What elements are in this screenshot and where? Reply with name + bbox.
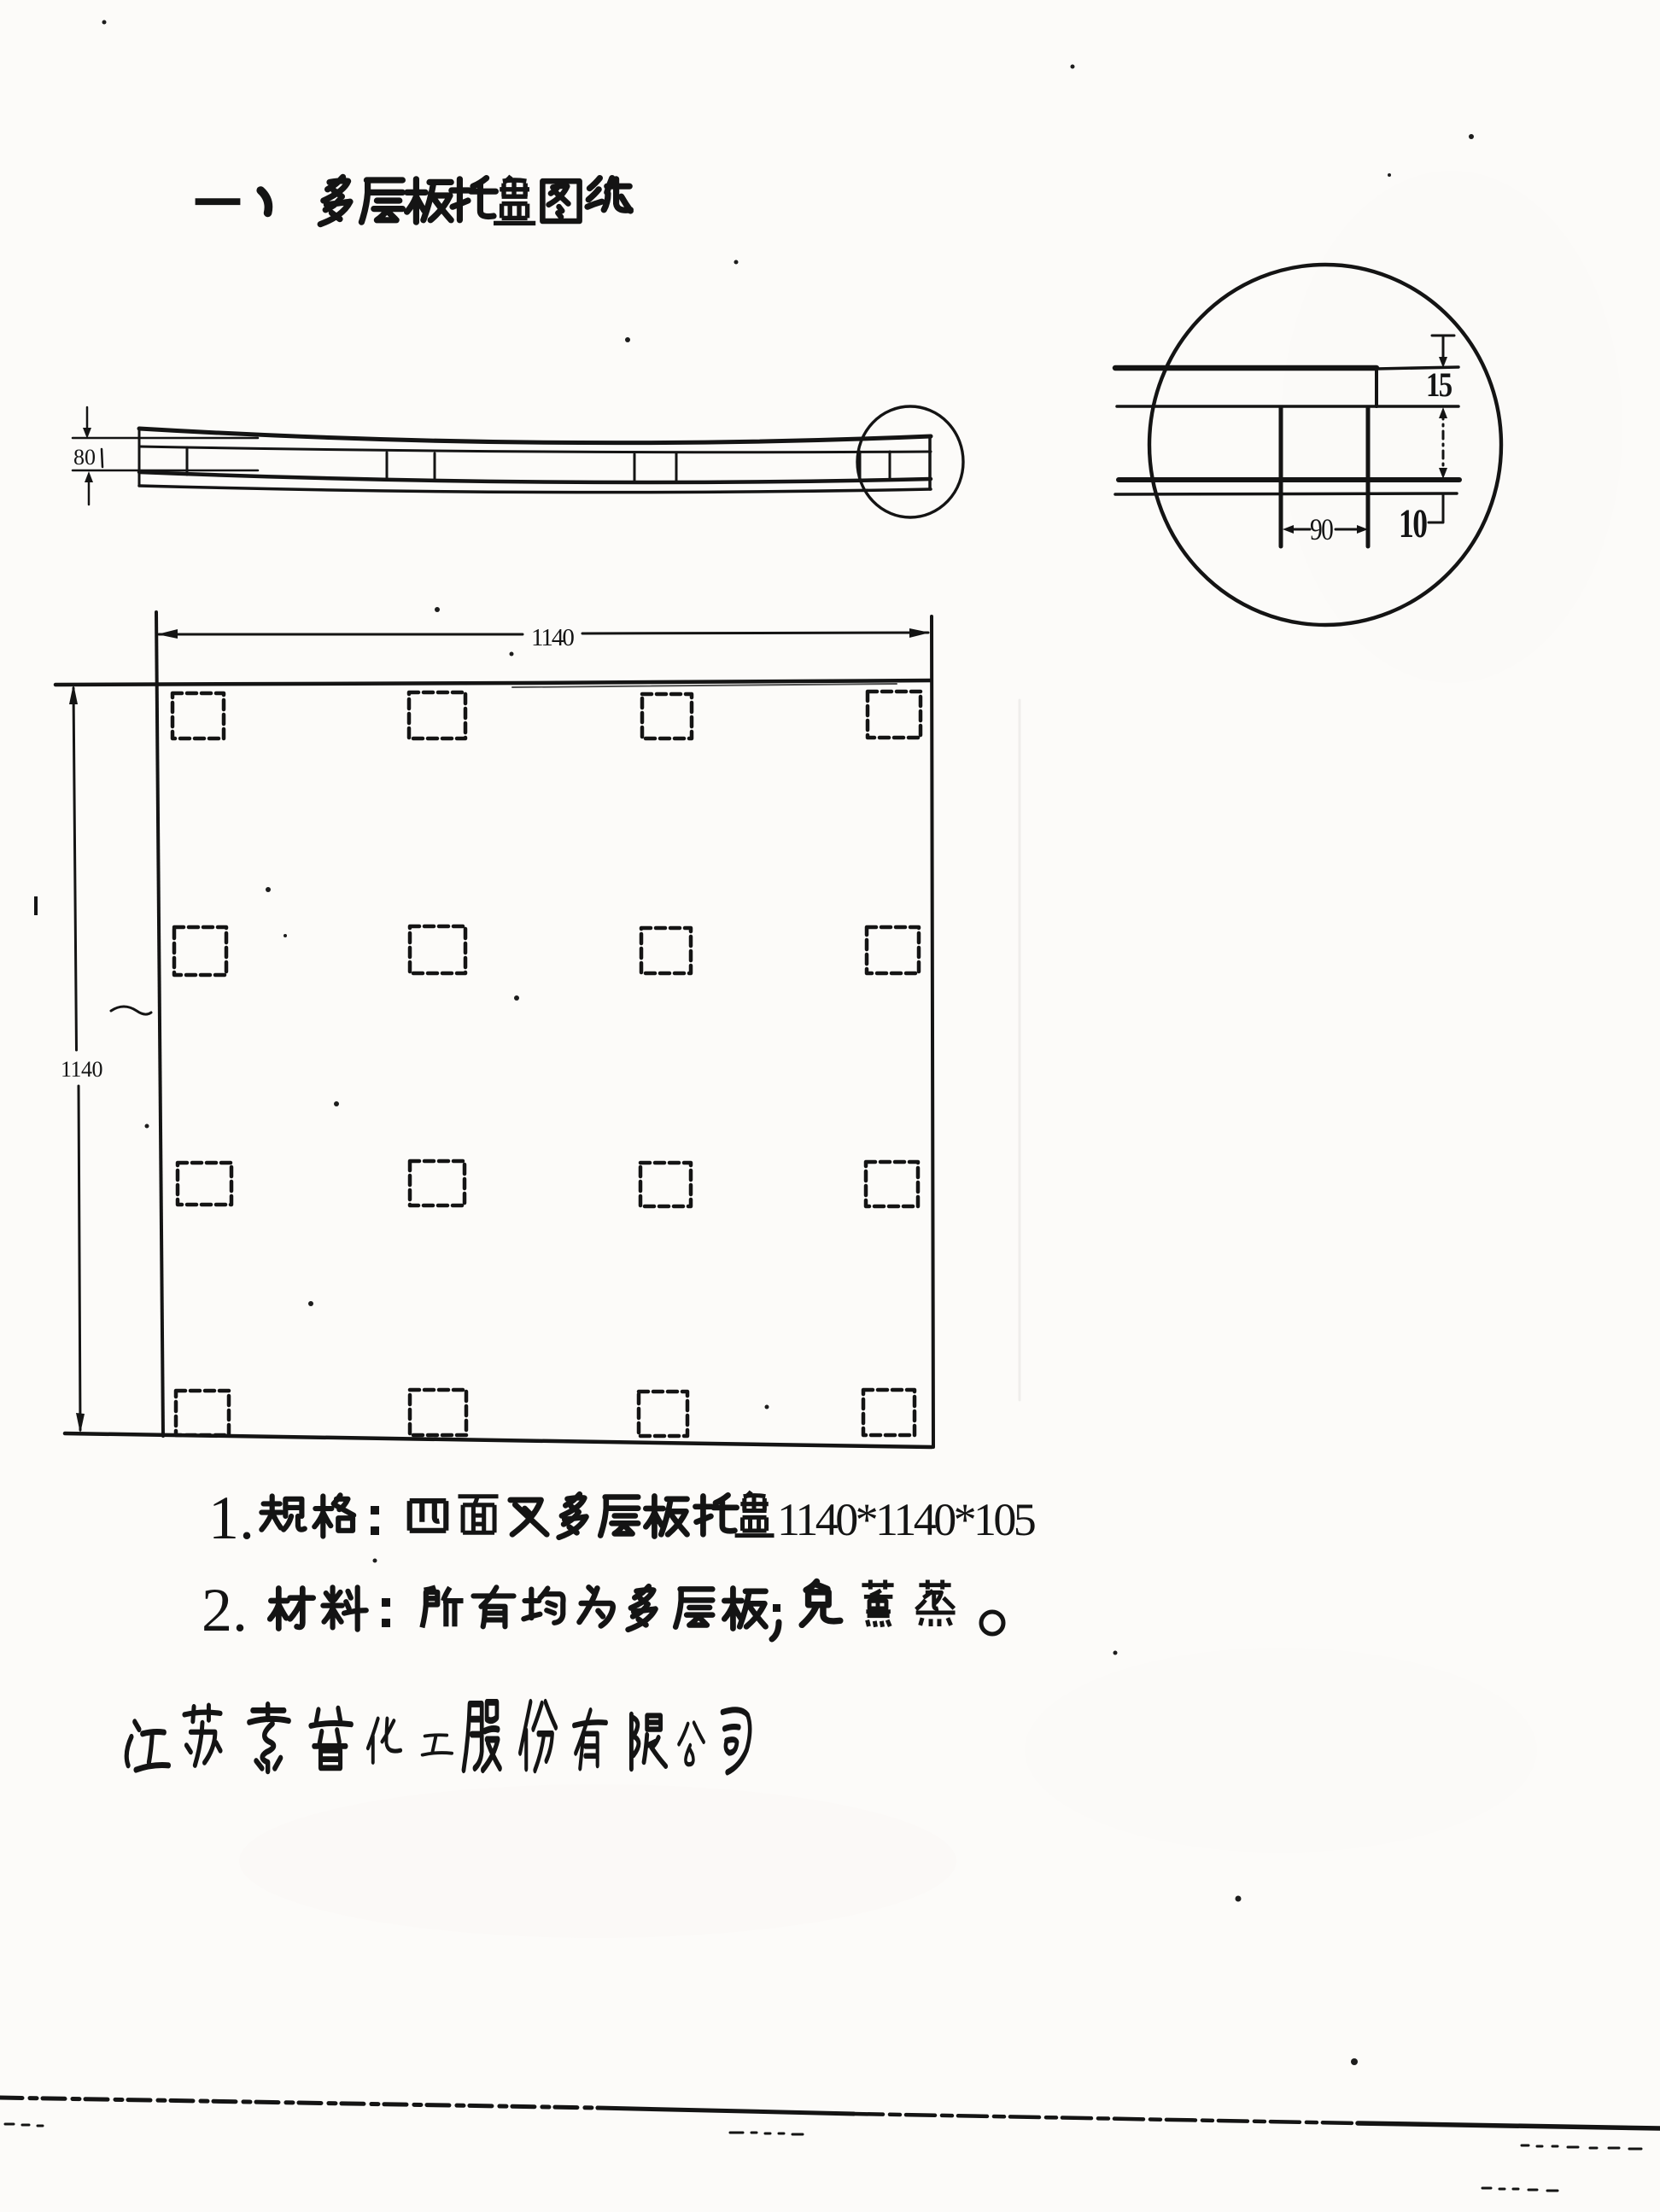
svg-text:1140*1140*105: 1140*1140*105 xyxy=(777,1494,1035,1545)
svg-text:80: 80 xyxy=(73,445,96,470)
svg-text:1.: 1. xyxy=(208,1484,254,1552)
svg-text:15: 15 xyxy=(1426,365,1452,404)
svg-text:1140: 1140 xyxy=(61,1057,103,1082)
svg-text:2.: 2. xyxy=(202,1576,248,1644)
svg-text:1140: 1140 xyxy=(531,624,574,651)
svg-text:90: 90 xyxy=(1310,513,1333,546)
svg-text:10: 10 xyxy=(1399,501,1427,546)
